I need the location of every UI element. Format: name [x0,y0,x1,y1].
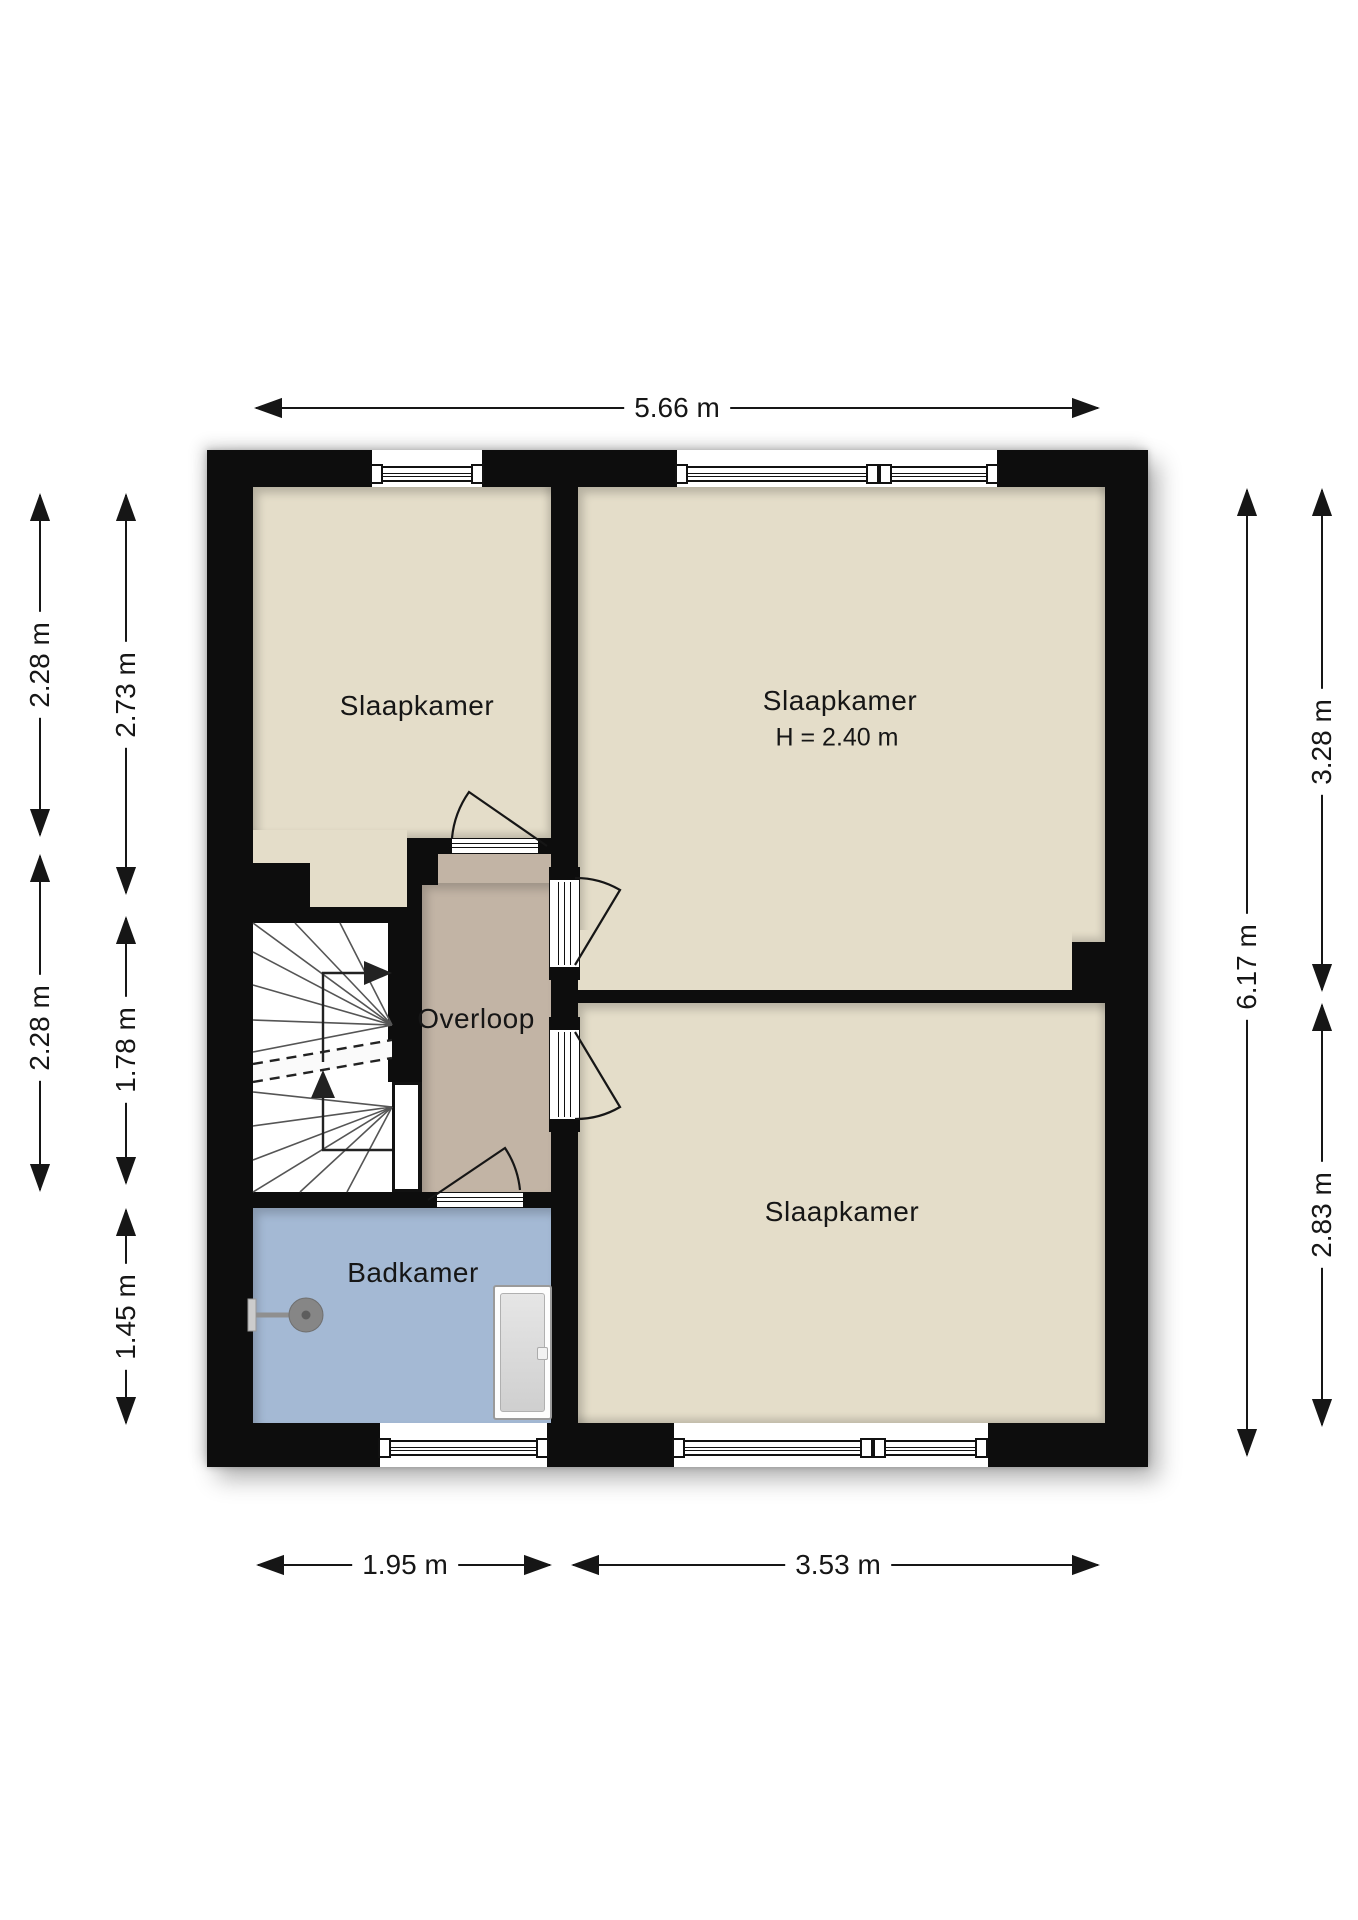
room-height-note: H = 2.40 m [776,724,899,753]
dim-label-right-outer-lower: 2.83 m [1305,1162,1339,1268]
dim-label-right-outer-upper: 3.28 m [1305,689,1339,795]
shower-head-icon [248,1298,323,1332]
dim-label-left-inner-upper: 2.73 m [109,642,143,748]
room-label-bathroom: Badkamer [347,1257,479,1289]
dim-label-right-inner: 6.17 m [1230,914,1264,1020]
floor-plan-canvas: Slaapkamer Slaapkamer H = 2.40 m Overloo… [0,0,1358,1920]
dim-label-left-outer-upper: 2.28 m [23,612,57,718]
room-label-bedroom-top-left: Slaapkamer [340,690,494,722]
dim-label-left-inner-lower: 1.45 m [109,1264,143,1370]
room-label-bedroom-top-right: Slaapkamer [763,685,917,717]
stairs-direction-arrow-lower [311,1070,392,1150]
dimension-lines [40,408,1322,1565]
dim-label-left-inner-middle: 1.78 m [109,997,143,1103]
door-swing-bedroom-top-right [575,878,620,965]
dim-label-bottom-right: 3.53 m [785,1548,891,1582]
dim-label-top-width: 5.66 m [624,391,730,425]
dim-label-left-outer-lower: 2.28 m [23,975,57,1081]
room-label-bedroom-bottom: Slaapkamer [765,1196,919,1228]
door-swings [428,792,620,1200]
room-label-landing: Overloop [417,1003,535,1035]
door-swing-bedroom-bottom [575,1032,620,1119]
plan-linework [0,0,1358,1920]
door-swing-bathroom [428,1148,520,1200]
door-swing-bedroom-top-left [452,792,547,846]
dim-label-bottom-left: 1.95 m [352,1548,458,1582]
